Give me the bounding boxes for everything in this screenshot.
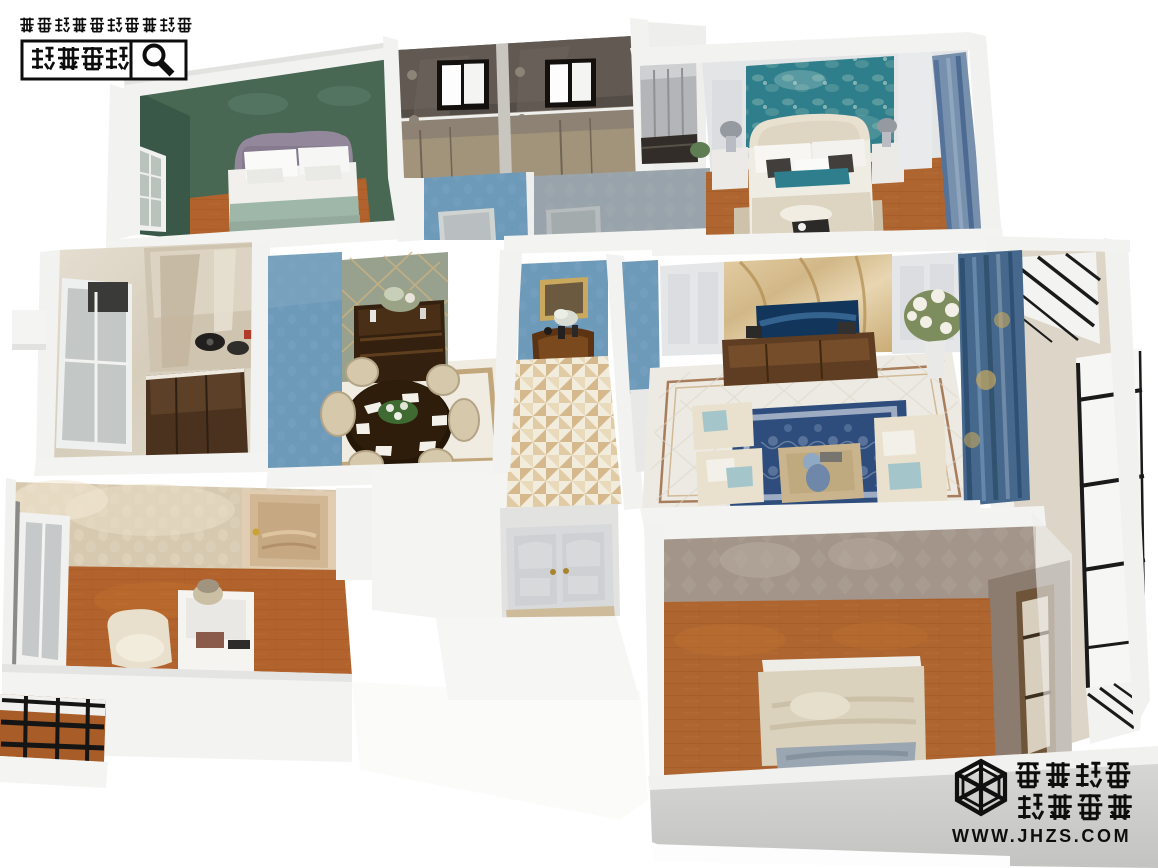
svg-text:WWW.JHZS.COM: WWW.JHZS.COM xyxy=(952,826,1131,846)
